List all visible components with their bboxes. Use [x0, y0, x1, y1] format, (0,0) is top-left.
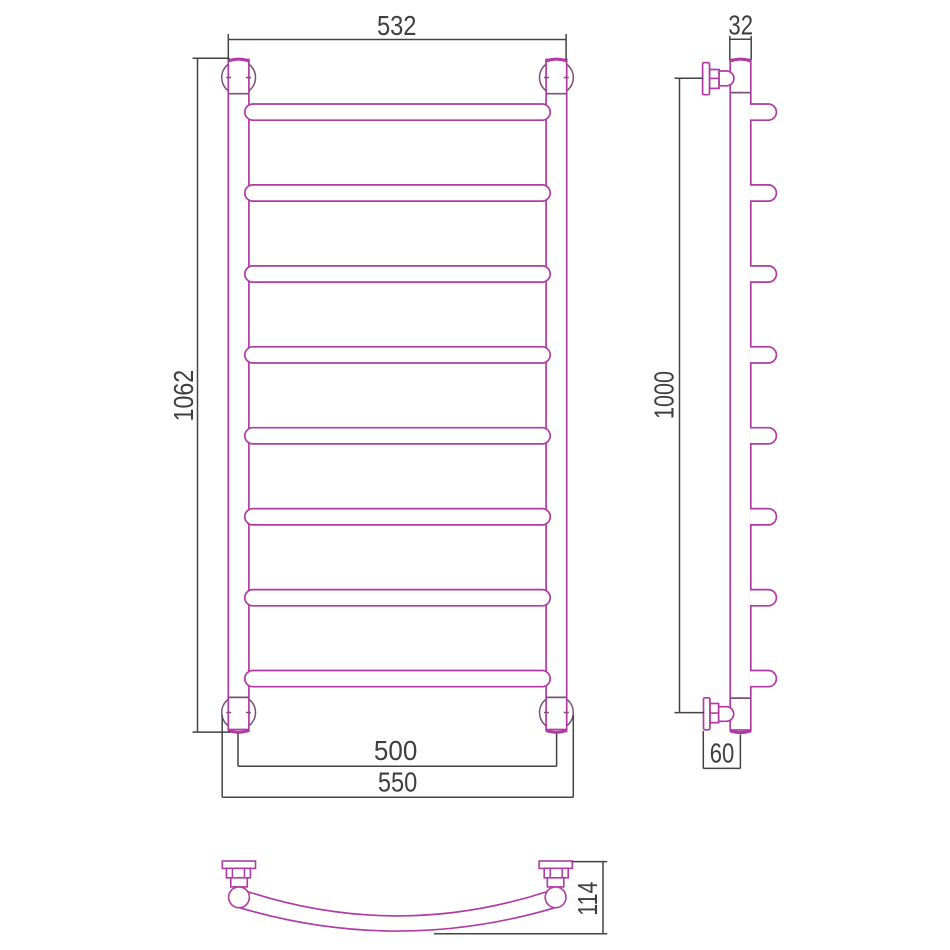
- svg-text:550: 550: [378, 766, 417, 797]
- svg-text:32: 32: [728, 9, 753, 40]
- svg-text:532: 532: [377, 10, 417, 41]
- svg-text:114: 114: [572, 882, 603, 916]
- svg-text:500: 500: [374, 735, 417, 766]
- svg-text:60: 60: [710, 738, 735, 769]
- svg-text:1062: 1062: [168, 370, 199, 422]
- svg-text:1000: 1000: [648, 371, 679, 419]
